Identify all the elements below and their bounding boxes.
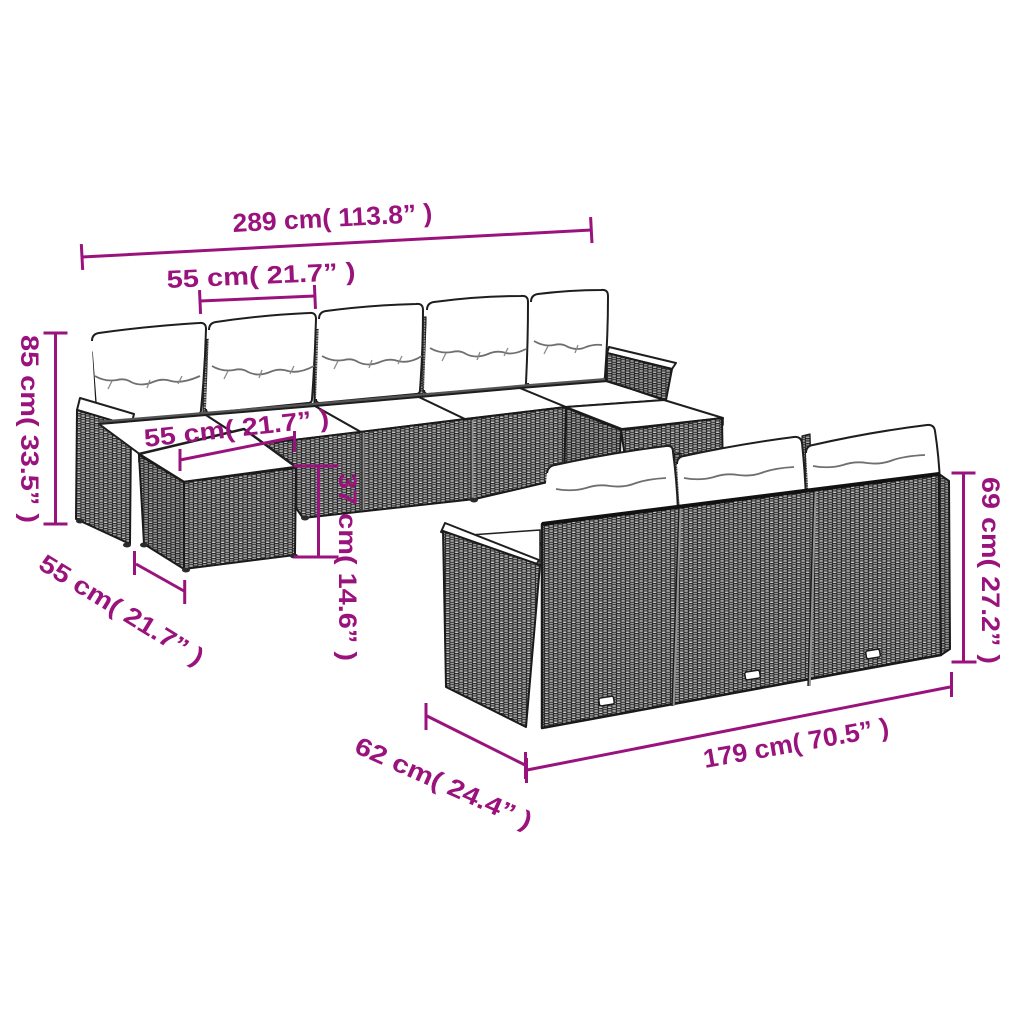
svg-text:85 cm( 33.5” ): 85 cm( 33.5” ) [15,335,43,523]
svg-text:69 cm( 27.2” ): 69 cm( 27.2” ) [976,477,1004,664]
svg-text:37 cm( 14.6” ): 37 cm( 14.6” ) [333,473,361,661]
